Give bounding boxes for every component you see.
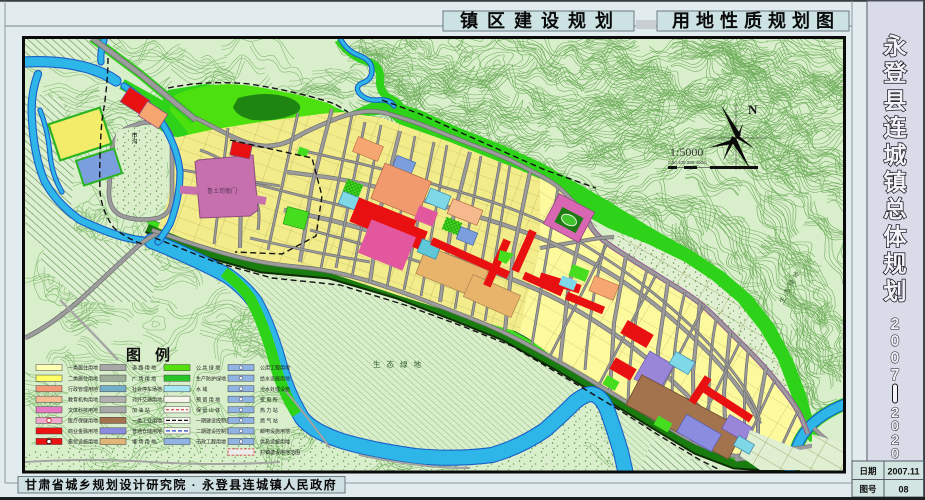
svg-text:一类工业用地: 一类工业用地: [132, 417, 162, 424]
svg-text:公用工程用地: 公用工程用地: [260, 365, 290, 372]
svg-text:预 留 用 地: 预 留 用 地: [196, 396, 220, 403]
svg-text:2: 2: [891, 316, 900, 333]
svg-text:镇: 镇: [884, 169, 907, 195]
svg-text:生产防护绿地: 生产防护绿地: [196, 375, 226, 382]
svg-text:道 路 用 地: 道 路 用 地: [132, 365, 156, 372]
svg-text:连: 连: [884, 115, 908, 141]
svg-text:文体科技用地: 文体科技用地: [68, 407, 98, 414]
svg-text:0: 0: [891, 333, 900, 350]
svg-text:加 油 站: 加 油 站: [132, 407, 150, 414]
svg-text:登: 登: [883, 60, 908, 86]
svg-text:永: 永: [884, 33, 907, 59]
svg-text:医疗保健用地: 医疗保健用地: [68, 417, 98, 424]
svg-text:7: 7: [891, 367, 900, 384]
svg-text:村镇建设用地范围: 村镇建设用地范围: [260, 449, 300, 456]
svg-text:体: 体: [884, 223, 908, 249]
svg-text:教育机构用地: 教育机构用地: [68, 396, 98, 403]
svg-text:总: 总: [884, 196, 907, 222]
svg-text:对外交通用地: 对外交通用地: [132, 396, 162, 403]
svg-text:镇区建设规划: 镇区建设规划: [460, 10, 622, 31]
svg-text:一类居住用地: 一类居住用地: [68, 365, 98, 372]
svg-text:城: 城: [884, 142, 907, 168]
svg-text:用地性质规划图: 用地性质规划图: [672, 10, 840, 31]
svg-text:图号: 图号: [859, 484, 877, 494]
svg-text:图例: 图例: [126, 346, 184, 364]
svg-text:甘肃省城乡规划设计研究院 · 永登县连城镇人民政府: 甘肃省城乡规划设计研究院 · 永登县连城镇人民政府: [25, 477, 337, 492]
svg-text:市政工程用地: 市政工程用地: [196, 439, 226, 446]
svg-text:N: N: [748, 102, 758, 117]
svg-text:集贸设施用地: 集贸设施用地: [68, 439, 98, 446]
svg-text:社会停车场地: 社会停车场地: [132, 386, 162, 393]
svg-text:县: 县: [884, 87, 907, 113]
svg-text:0 50 100 200 400: 0 50 100 200 400m: [668, 160, 707, 165]
svg-text:08: 08: [898, 485, 908, 495]
svg-text:日期: 日期: [859, 466, 877, 476]
svg-text:二类居住用地: 二类居住用地: [68, 375, 98, 382]
svg-text:堆 场 用 地: 堆 场 用 地: [132, 439, 156, 446]
svg-text:商业金融用地: 商业金融用地: [68, 428, 98, 435]
svg-text:公 共 绿 地: 公 共 绿 地: [196, 365, 220, 372]
svg-text:污水处理设施: 污水处理设施: [260, 386, 290, 393]
svg-text:市沟: 市沟: [130, 131, 137, 145]
svg-text:燃 气 站: 燃 气 站: [260, 417, 278, 424]
svg-text:2007.11: 2007.11: [887, 467, 919, 477]
svg-text:水 域: 水 域: [196, 386, 207, 393]
svg-text:0: 0: [891, 350, 900, 367]
svg-text:供热设施用地: 供热设施用地: [260, 439, 290, 446]
svg-text:广 场 用 地: 广 场 用 地: [132, 375, 156, 382]
svg-text:变 电 所: 变 电 所: [260, 396, 278, 403]
svg-text:生态绿地: 生态绿地: [373, 359, 427, 369]
svg-text:给水设施用地: 给水设施用地: [260, 375, 290, 382]
svg-text:划: 划: [884, 278, 907, 304]
svg-text:规: 规: [884, 251, 907, 277]
svg-text:鲁土司衙门: 鲁土司衙门: [207, 187, 237, 195]
svg-text:热 力 站: 热 力 站: [260, 407, 278, 414]
svg-text:邮电设施用地: 邮电设施用地: [260, 428, 290, 435]
svg-text:保 留 山 体: 保 留 山 体: [196, 407, 220, 414]
svg-text:行政管理用地: 行政管理用地: [68, 386, 98, 393]
svg-text:0: 0: [891, 445, 899, 461]
svg-text:普通仓储用地: 普通仓储用地: [132, 428, 162, 435]
svg-text:1:5000: 1:5000: [670, 145, 703, 159]
